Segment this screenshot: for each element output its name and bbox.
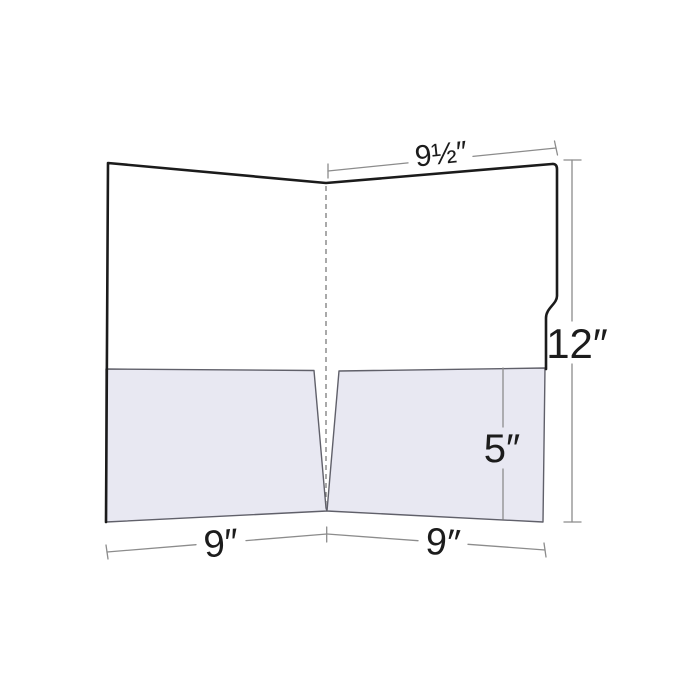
dim-overall-height-label: 12″	[546, 320, 608, 367]
dim-top-width-line-left	[328, 163, 408, 171]
folder-dimension-diagram: 9½″ 12″ 5″ 9″ 9″	[0, 0, 700, 700]
dim-bottom-right-line-b	[468, 544, 545, 550]
dim-right-panel-width-label: 9″	[424, 521, 462, 566]
dim-top-width-line-right	[473, 148, 556, 156]
dim-bottom-right-line-a	[327, 534, 418, 541]
dim-bottom-left-line-b	[246, 534, 327, 541]
diagram-canvas: 9½″ 12″ 5″ 9″ 9″	[0, 0, 700, 700]
dim-pocket-height-label: 5″	[484, 427, 520, 471]
dim-left-panel-width-label: 9″	[202, 522, 240, 567]
dim-top-panel-width-label: 9½″	[413, 135, 469, 173]
left-pocket	[106, 369, 327, 522]
dim-bottom-left-line-a	[107, 545, 196, 552]
